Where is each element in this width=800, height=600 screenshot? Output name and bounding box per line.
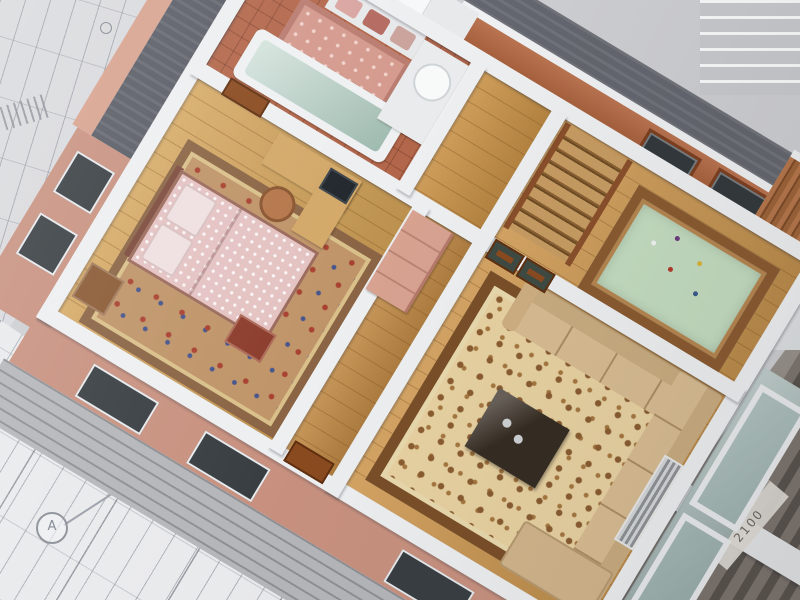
architectural-render-scene: A 2100	[0, 0, 800, 600]
towel-3	[389, 25, 417, 52]
glassware-2	[512, 433, 524, 445]
glassware-1	[501, 417, 513, 429]
pool-ball-purple	[674, 235, 681, 242]
pool-ball-blue	[692, 290, 699, 297]
pool-ball-red	[667, 266, 674, 273]
pool-ball-yellow	[696, 260, 703, 267]
house-cutaway	[0, 0, 800, 600]
pool-ball-white	[650, 240, 657, 247]
towel-1	[334, 0, 364, 19]
